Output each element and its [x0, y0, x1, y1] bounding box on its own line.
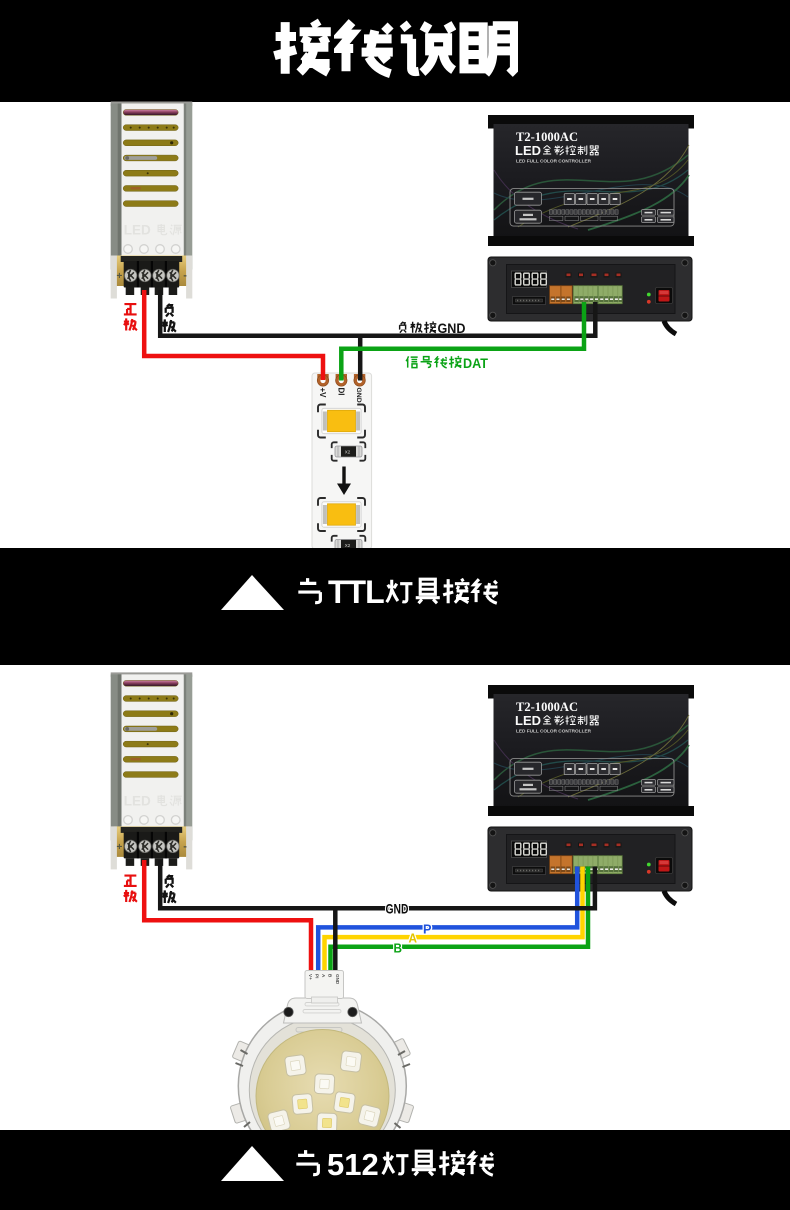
svg-text:B: B — [394, 941, 403, 956]
svg-text:P: P — [423, 921, 432, 936]
svg-text:A: A — [409, 930, 418, 945]
svg-text:+V: +V — [318, 388, 327, 399]
svg-text:DAT: DAT — [463, 355, 488, 371]
svg-text:GND: GND — [355, 388, 362, 403]
svg-text:PI: PI — [315, 974, 320, 978]
svg-text:GND: GND — [438, 321, 466, 336]
svg-text:DI: DI — [337, 388, 346, 396]
svg-text:GND: GND — [386, 901, 409, 916]
svg-text:TTL: TTL — [328, 574, 384, 610]
svg-text:V+: V+ — [308, 974, 313, 980]
svg-text:GND: GND — [335, 974, 340, 985]
svg-text:512: 512 — [327, 1147, 379, 1182]
